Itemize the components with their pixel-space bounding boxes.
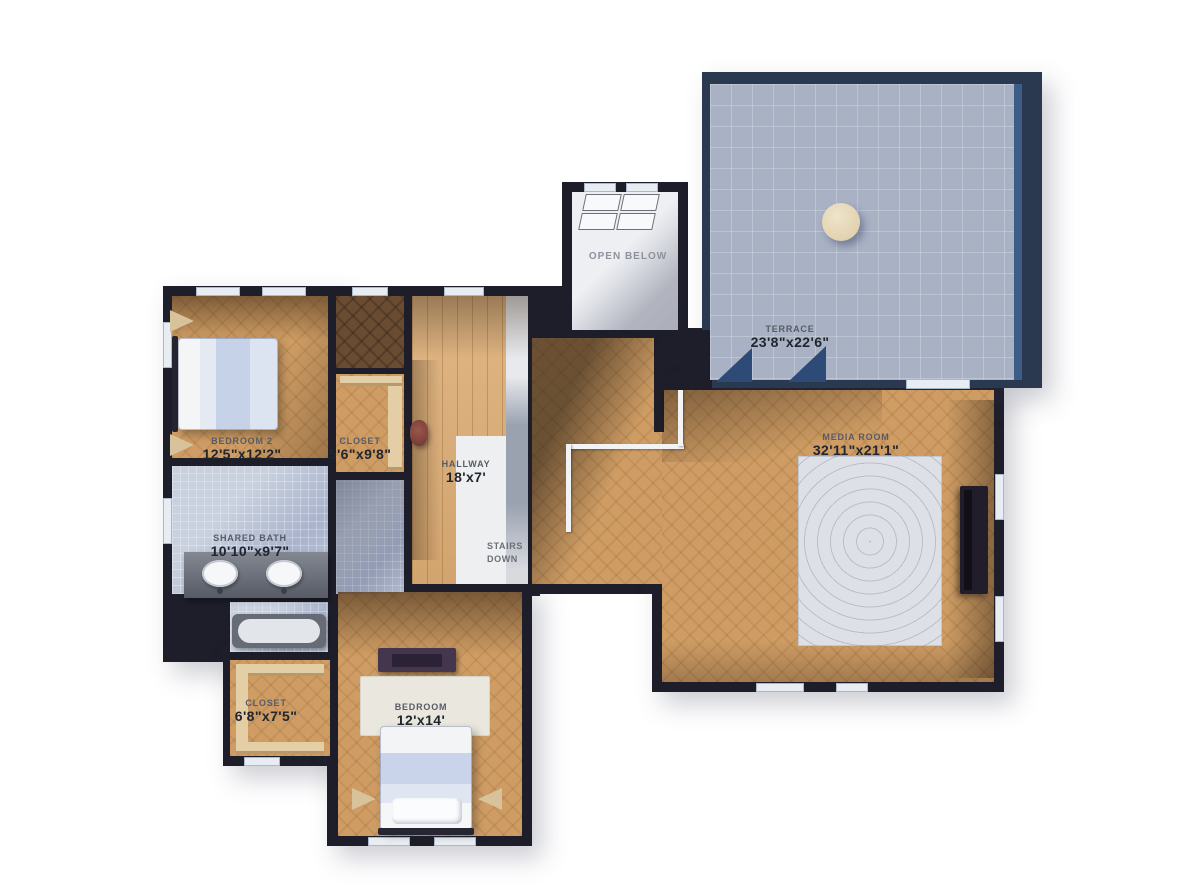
bed-pillows <box>392 798 462 824</box>
dresser-top <box>392 654 442 667</box>
floor-plan: BEDROOM 2 12'5"x12'2" CLOSET 5'6"x9'8" H… <box>0 0 1200 886</box>
room-name: BEDROOM 2 <box>203 436 282 446</box>
room-label-bedroom2: BEDROOM 2 12'5"x12'2" <box>203 436 282 462</box>
wall-segment <box>680 330 712 392</box>
window <box>626 183 658 192</box>
window <box>444 287 484 296</box>
wall-segment <box>528 286 578 346</box>
room-label-bedroom: BEDROOM 12'x14' <box>395 702 448 728</box>
skylight <box>620 194 660 211</box>
room-label-media-room: MEDIA ROOM 32'11"x21'1" <box>813 432 899 458</box>
room-name: CLOSET <box>235 698 297 708</box>
room-dims: 12'5"x12'2" <box>203 446 282 462</box>
hallway-chair <box>410 420 428 446</box>
faucet <box>217 588 223 594</box>
annotation-text: OPEN BELOW <box>589 251 667 262</box>
skylight <box>578 213 618 230</box>
room-name: HALLWAY <box>442 459 491 469</box>
window <box>434 837 476 846</box>
bed-headboard <box>378 828 474 835</box>
window <box>262 287 306 296</box>
window <box>163 498 172 544</box>
room-dims: 23'8"x22'6" <box>751 334 830 350</box>
room-name: BEDROOM <box>395 702 448 712</box>
room-name: SHARED BATH <box>211 533 290 543</box>
room-dims: 5'6"x9'8" <box>329 446 391 462</box>
media-room-rug <box>798 456 942 646</box>
stair-railing <box>566 444 571 532</box>
room-label-closet-lower: CLOSET 6'8"x7'5" <box>235 698 297 724</box>
bathtub-basin <box>238 619 320 643</box>
room-label-hallway: HALLWAY 18'x7' <box>442 459 491 485</box>
window <box>756 683 804 692</box>
room-dims: 18'x7' <box>442 469 491 485</box>
window <box>836 683 868 692</box>
window <box>352 287 388 296</box>
closet-upper-entry-floor <box>336 296 404 368</box>
stair-railing <box>566 444 684 449</box>
room-name: CLOSET <box>329 436 391 446</box>
closet-shelf <box>236 664 324 676</box>
stairs-down-label: STAIRS DOWN <box>487 540 523 566</box>
faucet <box>281 588 287 594</box>
stair-railing <box>678 390 683 446</box>
window <box>995 474 1004 520</box>
room-name: TERRACE <box>751 324 830 334</box>
sink <box>202 560 238 587</box>
closet-shelf <box>340 376 402 386</box>
terrace-door <box>906 379 970 389</box>
annotation-text: DOWN <box>487 553 523 566</box>
window <box>196 287 240 296</box>
sink <box>266 560 302 587</box>
room-label-closet-upper: CLOSET 5'6"x9'8" <box>329 436 391 462</box>
room-dims: 10'10"x9'7" <box>211 543 290 559</box>
annotation-text: STAIRS <box>487 540 523 553</box>
window <box>995 596 1004 642</box>
window <box>584 183 616 192</box>
open-below-label: OPEN BELOW <box>589 251 667 262</box>
window <box>244 757 280 766</box>
room-dims: 6'8"x7'5" <box>235 708 297 724</box>
landing-floor <box>532 338 664 584</box>
room-dims: 12'x14' <box>395 712 448 728</box>
skylight <box>582 194 622 211</box>
round-table <box>822 203 860 241</box>
bedroom2-bed <box>178 338 278 430</box>
room-label-shared-bath: SHARED BATH 10'10"x9'7" <box>211 533 290 559</box>
room-name: MEDIA ROOM <box>813 432 899 442</box>
window <box>368 837 410 846</box>
shared-bath-shower-floor <box>336 480 404 594</box>
tv-screen <box>964 490 972 590</box>
skylight <box>616 213 656 230</box>
room-label-terrace: TERRACE 23'8"x22'6" <box>751 324 830 350</box>
closet-shelf <box>236 742 324 754</box>
room-dims: 32'11"x21'1" <box>813 442 899 458</box>
